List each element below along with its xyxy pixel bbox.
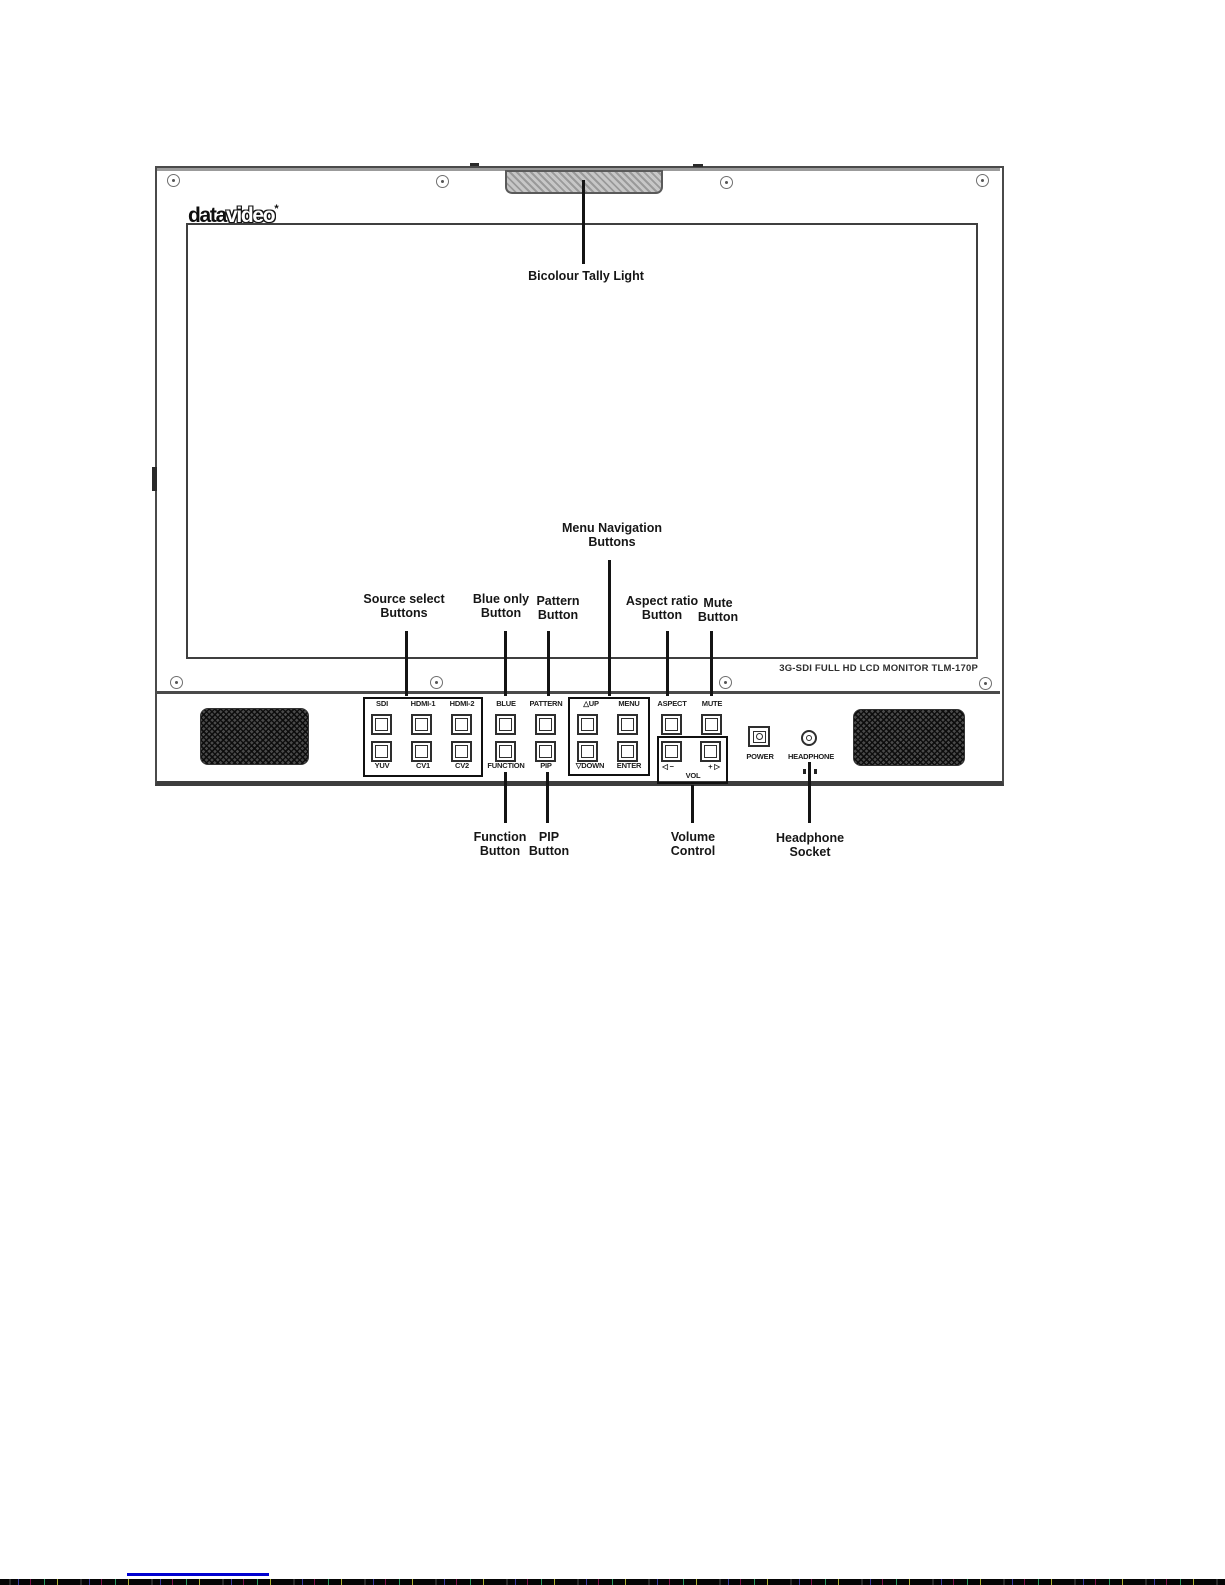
- pip-button: [535, 741, 556, 762]
- scan-artifact-blue-line: [127, 1573, 269, 1576]
- pattern-button: [535, 714, 556, 735]
- pattern-callout-line1: Pattern: [536, 594, 579, 608]
- source-select-leader-line: [405, 631, 408, 696]
- source-select-callout-line2: Buttons: [363, 606, 444, 620]
- headphone-callout-line1: Headphone: [776, 831, 844, 845]
- blue-button: [495, 714, 516, 735]
- aspect-button: [661, 714, 682, 735]
- mute-leader-line: [710, 631, 713, 696]
- logo-trademark: *: [274, 203, 278, 215]
- power-button: [748, 726, 770, 747]
- headphone-leader-line: [808, 762, 811, 823]
- down-label: ▽DOWN: [576, 761, 605, 770]
- scan-mark: [152, 467, 157, 491]
- menu-nav-callout-line1: Menu Navigation: [562, 521, 662, 535]
- headphone-jack-symbol: [803, 769, 806, 774]
- hdmi2-button: [451, 714, 472, 735]
- volume-leader-line: [691, 785, 694, 823]
- blue-only-callout-line2: Button: [473, 606, 529, 620]
- pip-callout: PIP Button: [529, 830, 569, 858]
- pip-label: PIP: [540, 761, 552, 770]
- tally-callout-text: Bicolour Tally Light: [528, 269, 644, 283]
- aspect-label: ASPECT: [657, 699, 686, 708]
- source-select-callout-line1: Source select: [363, 592, 444, 606]
- blue-label: BLUE: [496, 699, 516, 708]
- menu-button: [617, 714, 638, 735]
- screw-icon: [979, 677, 992, 690]
- function-callout-line2: Button: [474, 844, 527, 858]
- cv1-button: [411, 741, 432, 762]
- cv1-label: CV1: [416, 761, 430, 770]
- model-text: 3G-SDI FULL HD LCD MONITOR TLM-170P: [779, 663, 978, 674]
- volume-plus-label: + ▷: [708, 762, 720, 771]
- scan-mark: [693, 164, 703, 167]
- yuv-label: YUV: [375, 761, 390, 770]
- pattern-callout-line2: Button: [536, 608, 579, 622]
- lcd-screen: [186, 223, 978, 659]
- sdi-label: SDI: [376, 699, 388, 708]
- aspect-callout: Aspect ratio Button: [626, 594, 698, 622]
- hdmi1-button: [411, 714, 432, 735]
- volume-callout-line1: Volume: [671, 830, 715, 844]
- screw-icon: [976, 174, 989, 187]
- volume-callout: Volume Control: [671, 830, 715, 858]
- tally-leader-line: [582, 180, 585, 264]
- function-callout: Function Button: [474, 830, 527, 858]
- pip-leader-line: [546, 772, 549, 823]
- cv2-label: CV2: [455, 761, 469, 770]
- menu-nav-callout: Menu Navigation Buttons: [562, 521, 662, 549]
- manual-page: datavideo* 3G-SDI FULL HD LCD MONITOR TL…: [0, 0, 1225, 1585]
- pattern-label: PATTERN: [530, 699, 563, 708]
- function-callout-line1: Function: [474, 830, 527, 844]
- screw-icon: [720, 176, 733, 189]
- volume-callout-line2: Control: [671, 844, 715, 858]
- enter-label: ENTER: [617, 761, 641, 770]
- tally-callout: Bicolour Tally Light: [528, 269, 644, 283]
- headphone-callout-line2: Socket: [776, 845, 844, 859]
- function-label: FUNCTION: [487, 761, 524, 770]
- screw-icon: [436, 175, 449, 188]
- mute-callout-line1: Mute: [698, 596, 738, 610]
- headphone-label: HEADPHONE: [788, 752, 834, 761]
- mute-button: [701, 714, 722, 735]
- speaker-grille-right: [853, 709, 965, 766]
- screw-icon: [167, 174, 180, 187]
- speaker-grille-left: [200, 708, 309, 765]
- up-label: △UP: [583, 699, 599, 708]
- logo-text-solid: data: [188, 204, 226, 227]
- aspect-leader-line: [666, 631, 669, 696]
- logo-text-outline: video: [226, 204, 274, 227]
- down-button: [577, 741, 598, 762]
- yuv-button: [371, 741, 392, 762]
- pattern-callout: Pattern Button: [536, 594, 579, 622]
- menu-label: MENU: [618, 699, 639, 708]
- headphone-jack-symbol: [814, 769, 817, 774]
- pip-callout-line1: PIP: [529, 830, 569, 844]
- volume-down-button: [661, 741, 682, 762]
- datavideo-logo: datavideo*: [188, 197, 279, 221]
- pattern-leader-line: [547, 631, 550, 696]
- scan-artifact-noise-bar: [0, 1579, 1225, 1585]
- volume-up-button: [700, 741, 721, 762]
- function-leader-line: [504, 772, 507, 823]
- headphone-callout: Headphone Socket: [776, 831, 844, 859]
- menu-nav-leader-line: [608, 560, 611, 696]
- cv2-button: [451, 741, 472, 762]
- enter-button: [617, 741, 638, 762]
- mute-callout-line2: Button: [698, 610, 738, 624]
- menu-nav-callout-line2: Buttons: [562, 535, 662, 549]
- sdi-button: [371, 714, 392, 735]
- headphone-socket: [801, 730, 817, 746]
- source-select-callout: Source select Buttons: [363, 592, 444, 620]
- pip-callout-line2: Button: [529, 844, 569, 858]
- screw-icon: [430, 676, 443, 689]
- blue-only-callout-line1: Blue only: [473, 592, 529, 606]
- mute-label: MUTE: [702, 699, 722, 708]
- screw-icon: [170, 676, 183, 689]
- hdmi1-label: HDMI-1: [411, 699, 436, 708]
- volume-minus-label: ◁ −: [662, 762, 674, 771]
- mute-callout: Mute Button: [698, 596, 738, 624]
- hdmi2-label: HDMI-2: [450, 699, 475, 708]
- blue-only-leader-line: [504, 631, 507, 696]
- aspect-callout-line1: Aspect ratio: [626, 594, 698, 608]
- aspect-callout-line2: Button: [626, 608, 698, 622]
- screw-icon: [719, 676, 732, 689]
- function-button: [495, 741, 516, 762]
- up-button: [577, 714, 598, 735]
- scan-mark: [470, 163, 479, 166]
- control-strip-divider: [157, 691, 1000, 694]
- power-label: POWER: [746, 752, 773, 761]
- blue-only-callout: Blue only Button: [473, 592, 529, 620]
- vol-label: VOL: [686, 771, 701, 780]
